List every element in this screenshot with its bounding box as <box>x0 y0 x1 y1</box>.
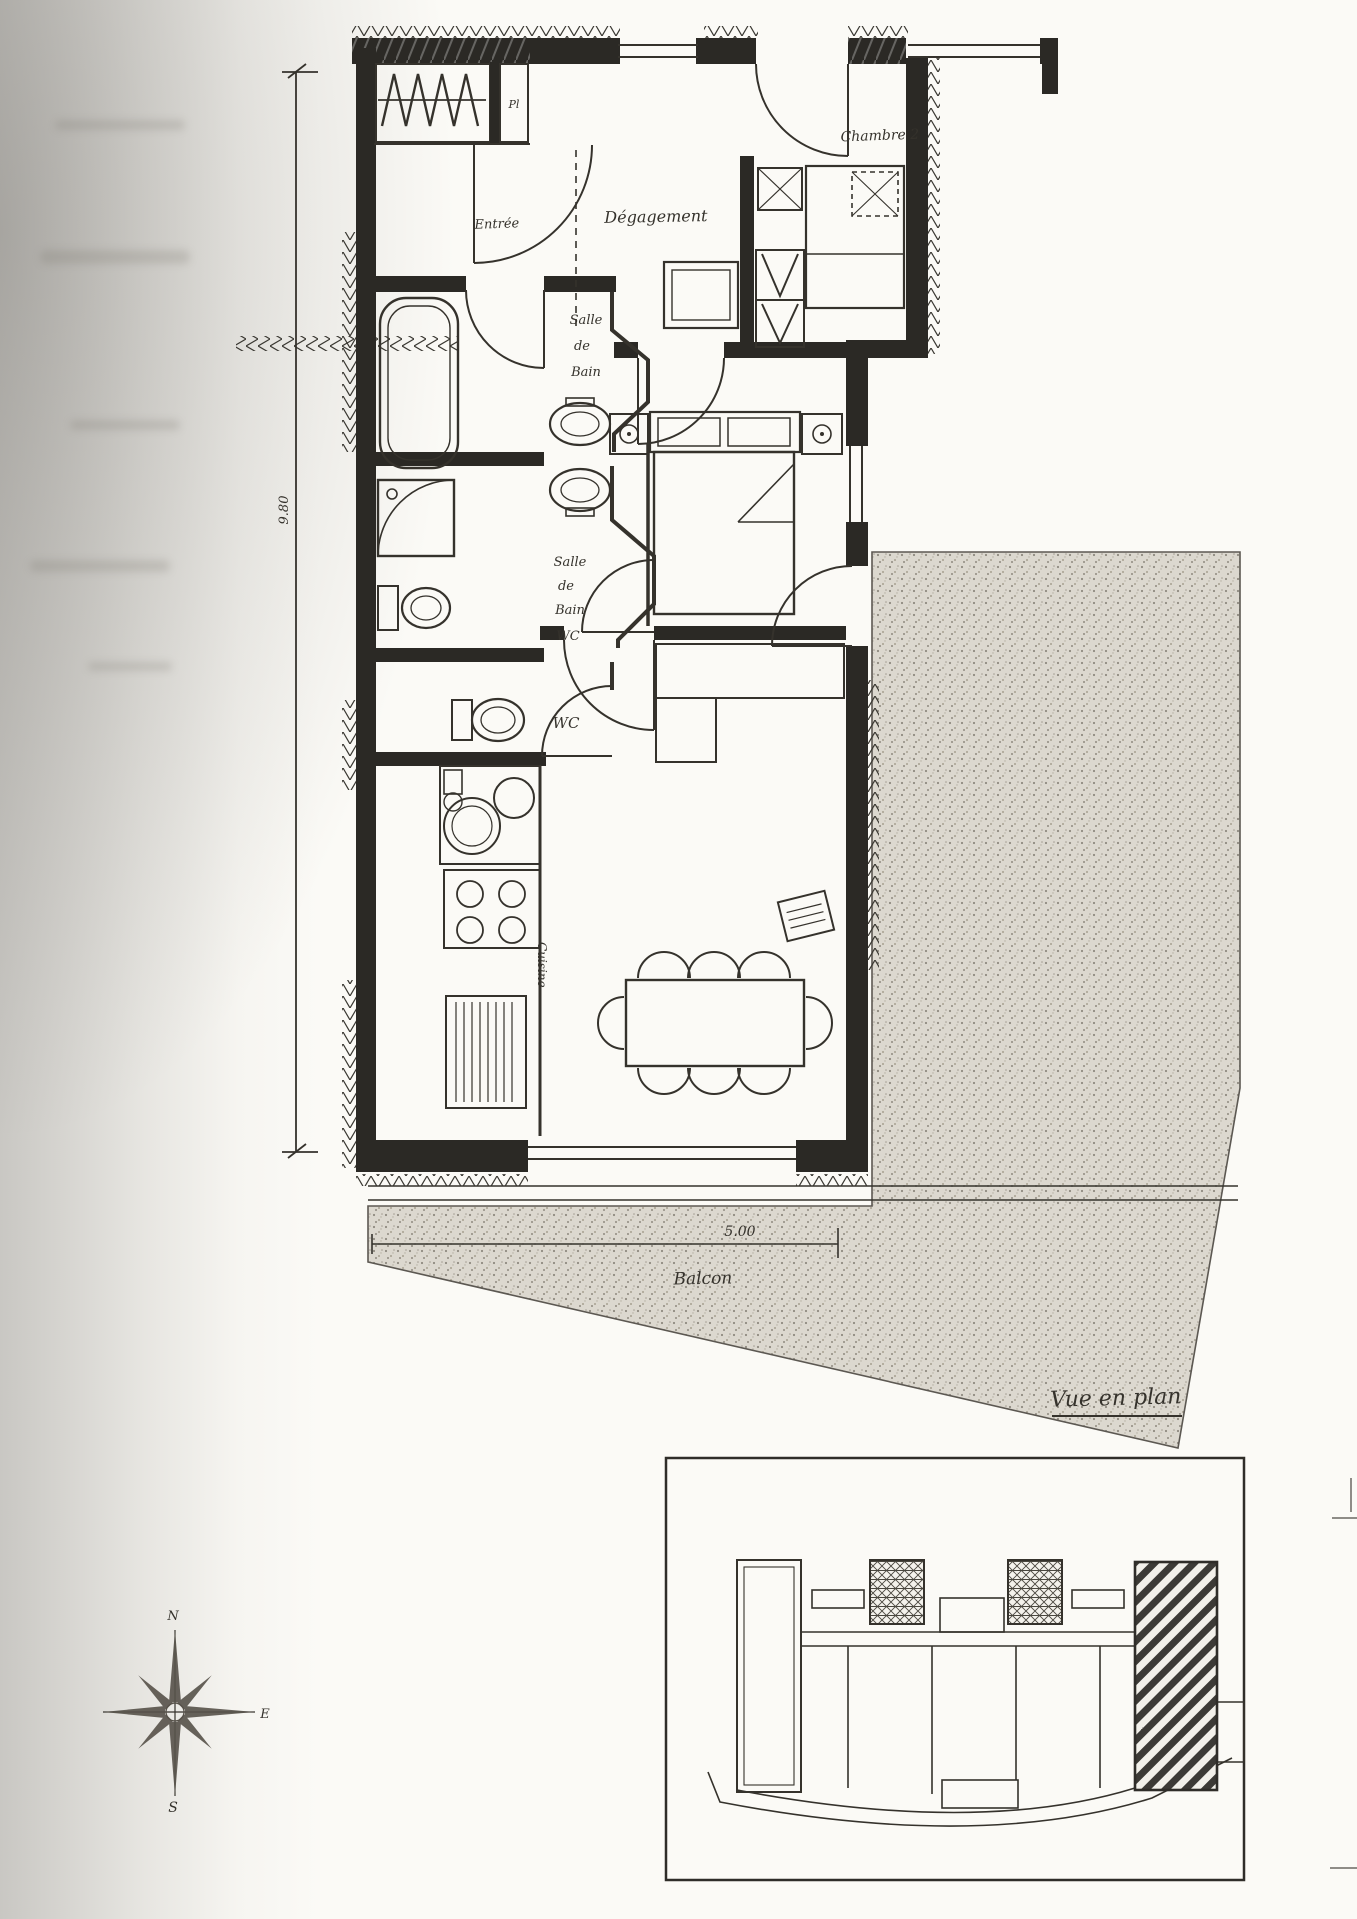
wall-segment <box>1042 38 1058 94</box>
sofa-corner <box>656 698 716 762</box>
wall-segment <box>356 1140 528 1172</box>
bath2-label-line3: Bain <box>554 603 585 618</box>
wall-hatch <box>848 26 908 40</box>
plan-caption-label: Vue en plan <box>1050 1384 1182 1412</box>
stair-core <box>1008 1560 1062 1624</box>
building-top-cell <box>812 1590 864 1608</box>
toilet-tank <box>452 700 472 740</box>
wardrobe-zigzag <box>762 254 798 296</box>
building-top-cell <box>1072 1590 1124 1608</box>
wall-hatch <box>342 700 356 790</box>
bed1-fold <box>738 464 794 522</box>
bedroom2-label: Chambre 2 <box>840 127 919 146</box>
building-bottom-notch <box>942 1780 1018 1808</box>
washbasin <box>550 469 610 511</box>
wall-hatch <box>352 26 530 40</box>
stove-burner <box>499 881 525 907</box>
dining-table <box>626 980 804 1066</box>
stove-burner <box>499 917 525 943</box>
wall-segment <box>846 340 868 444</box>
floor-plan-drawing: Balcon <box>0 0 1357 1919</box>
window-post <box>612 38 620 64</box>
building-left-wing-inner <box>744 1567 794 1785</box>
building-right-wing <box>1217 1702 1244 1762</box>
wall-segment <box>906 58 928 354</box>
shower-curve <box>378 480 454 556</box>
building-entry-notch <box>940 1598 1004 1632</box>
wall-segment <box>356 48 376 1168</box>
wall-hatch <box>530 26 620 40</box>
window-sill <box>846 438 868 446</box>
wall-segment <box>796 1140 868 1172</box>
wc-label: WC <box>553 714 580 732</box>
nightstand-lamp-dot <box>627 432 631 436</box>
entry-label: Entrée <box>473 216 519 233</box>
wall-segment <box>724 342 846 358</box>
bathtub-inner <box>388 306 450 460</box>
scanned-floor-plan-page: Balcon <box>0 0 1357 1919</box>
bathroom-2: Salle de Bain WC <box>378 469 610 644</box>
kitchen-label: Cuisine <box>535 942 549 988</box>
page-edge-marks <box>1330 1478 1357 1868</box>
washbasin-inner <box>561 478 599 502</box>
wall-texture <box>352 38 530 64</box>
sofa <box>656 644 844 698</box>
subject-unit-hatched <box>1135 1562 1217 1790</box>
wardrobe-zigzag <box>762 304 798 343</box>
window-sill <box>846 522 868 530</box>
window-post <box>696 38 704 64</box>
toilet-bowl <box>472 699 524 741</box>
entry-door-arc <box>474 145 592 263</box>
wall-hatch <box>796 1174 868 1186</box>
stove-burner <box>457 881 483 907</box>
bathroom1-door-arc <box>466 290 544 368</box>
stove-burner <box>457 917 483 943</box>
bathroom2-door-arc <box>582 560 654 632</box>
closet-cell-label: Pl <box>508 98 520 111</box>
dimension-vertical-label: 9.80 <box>277 496 292 525</box>
wall-segment <box>846 530 868 566</box>
bath1-label-line3: Bain <box>570 365 601 380</box>
wall-hatch <box>342 232 356 452</box>
wall-segment <box>654 626 846 640</box>
toilet-tank <box>378 586 398 630</box>
bathroom-1: Salle de Bain <box>380 298 610 468</box>
building-left-wing <box>737 1560 801 1792</box>
hall-cupboard-inner <box>672 270 730 320</box>
wall-hatch <box>868 680 879 970</box>
dimension-vertical: 9.80 <box>277 64 318 1158</box>
living-room <box>598 644 844 1094</box>
tv-unit <box>778 891 834 941</box>
bathtub <box>380 298 458 468</box>
bedroom-2: Chambre 2 <box>756 127 920 347</box>
compass-east-label: E <box>259 1707 270 1722</box>
hallway-label: Dégagement <box>603 206 708 227</box>
key-plan <box>666 1458 1357 1880</box>
dimension-slash <box>288 1144 306 1158</box>
toilet-bowl-inner <box>481 707 515 733</box>
bath1-label-line1: Salle <box>570 313 603 328</box>
balcony-label: Balcon <box>672 1268 732 1289</box>
shower-drain <box>387 489 397 499</box>
compass-rose: N E S <box>101 1609 270 1816</box>
bath2-label-line2: de <box>558 579 574 594</box>
bathroom-wall <box>612 292 648 452</box>
washbasin <box>550 403 610 445</box>
wall-segment <box>490 62 500 144</box>
bedroom-1 <box>610 412 842 614</box>
compass-points <box>101 1630 255 1796</box>
wall-segment <box>356 276 466 292</box>
bed2 <box>806 166 904 308</box>
sink-bowl-inner <box>452 806 492 846</box>
wall-segment <box>704 38 756 64</box>
dimension-balcony-label: 5.00 <box>724 1224 755 1240</box>
wall-segment <box>740 156 754 344</box>
wall-segment <box>544 276 616 292</box>
bath1-label-line2: de <box>574 339 590 354</box>
wall-hatch <box>928 58 940 354</box>
dimension-slash <box>288 64 306 78</box>
bedroom2-door-arc <box>756 64 848 156</box>
wall-segment <box>356 752 546 766</box>
wall-hatch <box>704 26 758 40</box>
bed2-pillow-cross <box>852 172 898 216</box>
bed1 <box>654 452 794 614</box>
bed1-pillow <box>728 418 790 446</box>
bath2-label-line1: Salle <box>554 555 587 570</box>
stair-core <box>870 1560 924 1624</box>
wall-segment <box>846 646 868 1168</box>
appliance <box>446 996 526 1108</box>
appliance-vents <box>456 1002 512 1102</box>
compass-north-label: N <box>166 1609 179 1624</box>
wall-texture <box>848 38 906 64</box>
sink-tap <box>444 770 462 794</box>
wc-room: WC <box>452 699 580 741</box>
wall-segment <box>530 38 618 64</box>
bed1-pillow <box>658 418 720 446</box>
wall-segment <box>356 648 544 662</box>
hall-cupboard <box>664 262 738 328</box>
nightstand-lamp-dot <box>820 432 824 436</box>
bedside-table-cross <box>758 168 802 210</box>
shower <box>378 480 454 556</box>
bath2-label-line4: WC <box>556 629 579 644</box>
toilet-bowl-inner <box>411 596 441 620</box>
compass-south-label: S <box>168 1800 178 1816</box>
wall-hatch <box>342 980 356 1168</box>
sink-bowl-2 <box>494 778 534 818</box>
washbasin-inner <box>561 412 599 436</box>
kitchen: Cuisine <box>440 766 549 1108</box>
toilet-bowl <box>402 588 450 628</box>
key-plan-building <box>708 1560 1244 1826</box>
wall-hatch <box>356 1174 528 1186</box>
